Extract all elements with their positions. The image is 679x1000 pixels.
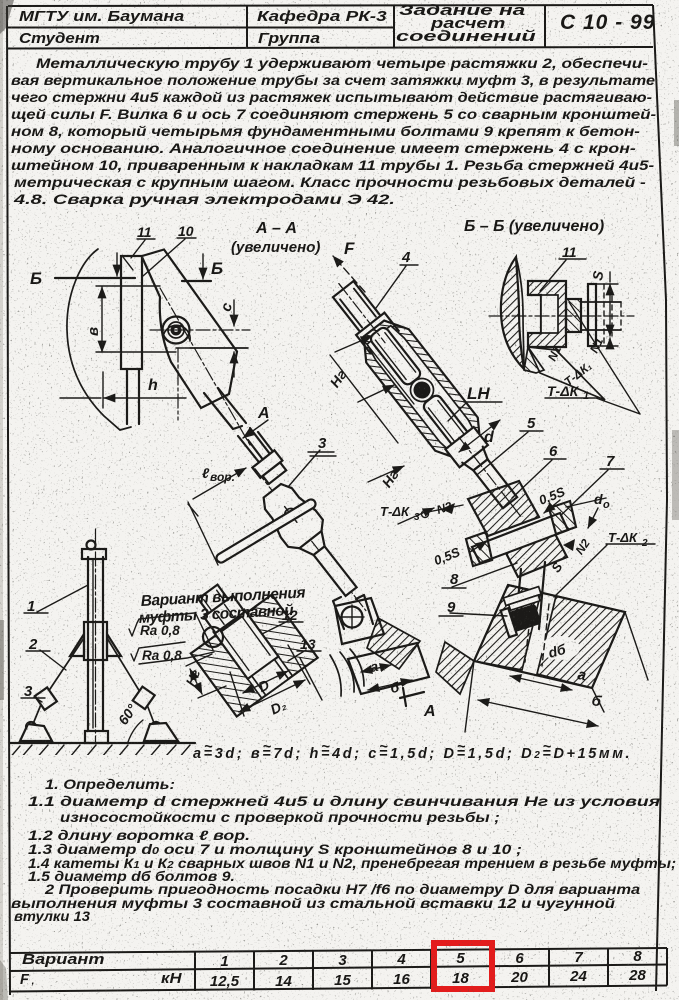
svg-text:б: б <box>389 679 401 697</box>
svg-text:11: 11 <box>562 244 577 260</box>
svg-text:(увеличено): (увеличено) <box>231 239 320 256</box>
svg-text:Ra 0,8: Ra 0,8 <box>140 623 180 638</box>
svg-text:1: 1 <box>583 390 589 402</box>
svg-text:в: в <box>85 327 102 336</box>
svg-text:Т-ΔК: Т-ΔК <box>380 504 410 519</box>
svg-text:Т-ΔК: Т-ΔК <box>547 383 580 399</box>
svg-text:А – А: А – А <box>255 220 297 237</box>
svg-text:F: F <box>344 239 355 258</box>
svg-text:3: 3 <box>414 512 420 523</box>
svg-text:А: А <box>423 703 436 720</box>
svg-text:Hг: Hг <box>183 667 204 688</box>
svg-text:D₂: D₂ <box>268 697 289 718</box>
svg-text:h: h <box>148 377 158 394</box>
svg-text:Т-ΔК: Т-ΔК <box>608 530 638 545</box>
svg-text:ℓ: ℓ <box>202 465 210 481</box>
svg-text:a: a <box>369 658 380 675</box>
svg-text:Б: Б <box>211 259 223 278</box>
svg-text:LH: LH <box>467 384 490 403</box>
svg-text:S: S <box>589 269 606 282</box>
svg-text:0,5S: 0,5S <box>432 544 463 568</box>
svg-text:Hг: Hг <box>326 366 349 390</box>
svg-text:6: 6 <box>549 443 558 460</box>
svg-text:Hг: Hг <box>378 466 401 490</box>
svg-text:Б – Б (увеличено): Б – Б (увеличено) <box>464 218 604 235</box>
svg-text:12: 12 <box>282 607 298 623</box>
svg-text:10: 10 <box>178 223 194 239</box>
svg-text:Б: Б <box>30 269 42 288</box>
svg-text:o: o <box>603 499 610 511</box>
svg-text:7: 7 <box>606 453 615 470</box>
svg-text:N2: N2 <box>572 536 592 557</box>
svg-text:N3: N3 <box>435 499 454 517</box>
svg-text:13: 13 <box>300 636 316 652</box>
svg-text:60°: 60° <box>115 701 140 728</box>
svg-text:3: 3 <box>318 435 327 452</box>
svg-text:5: 5 <box>527 415 536 432</box>
svg-text:4: 4 <box>401 249 411 266</box>
svg-text:11: 11 <box>137 224 152 240</box>
